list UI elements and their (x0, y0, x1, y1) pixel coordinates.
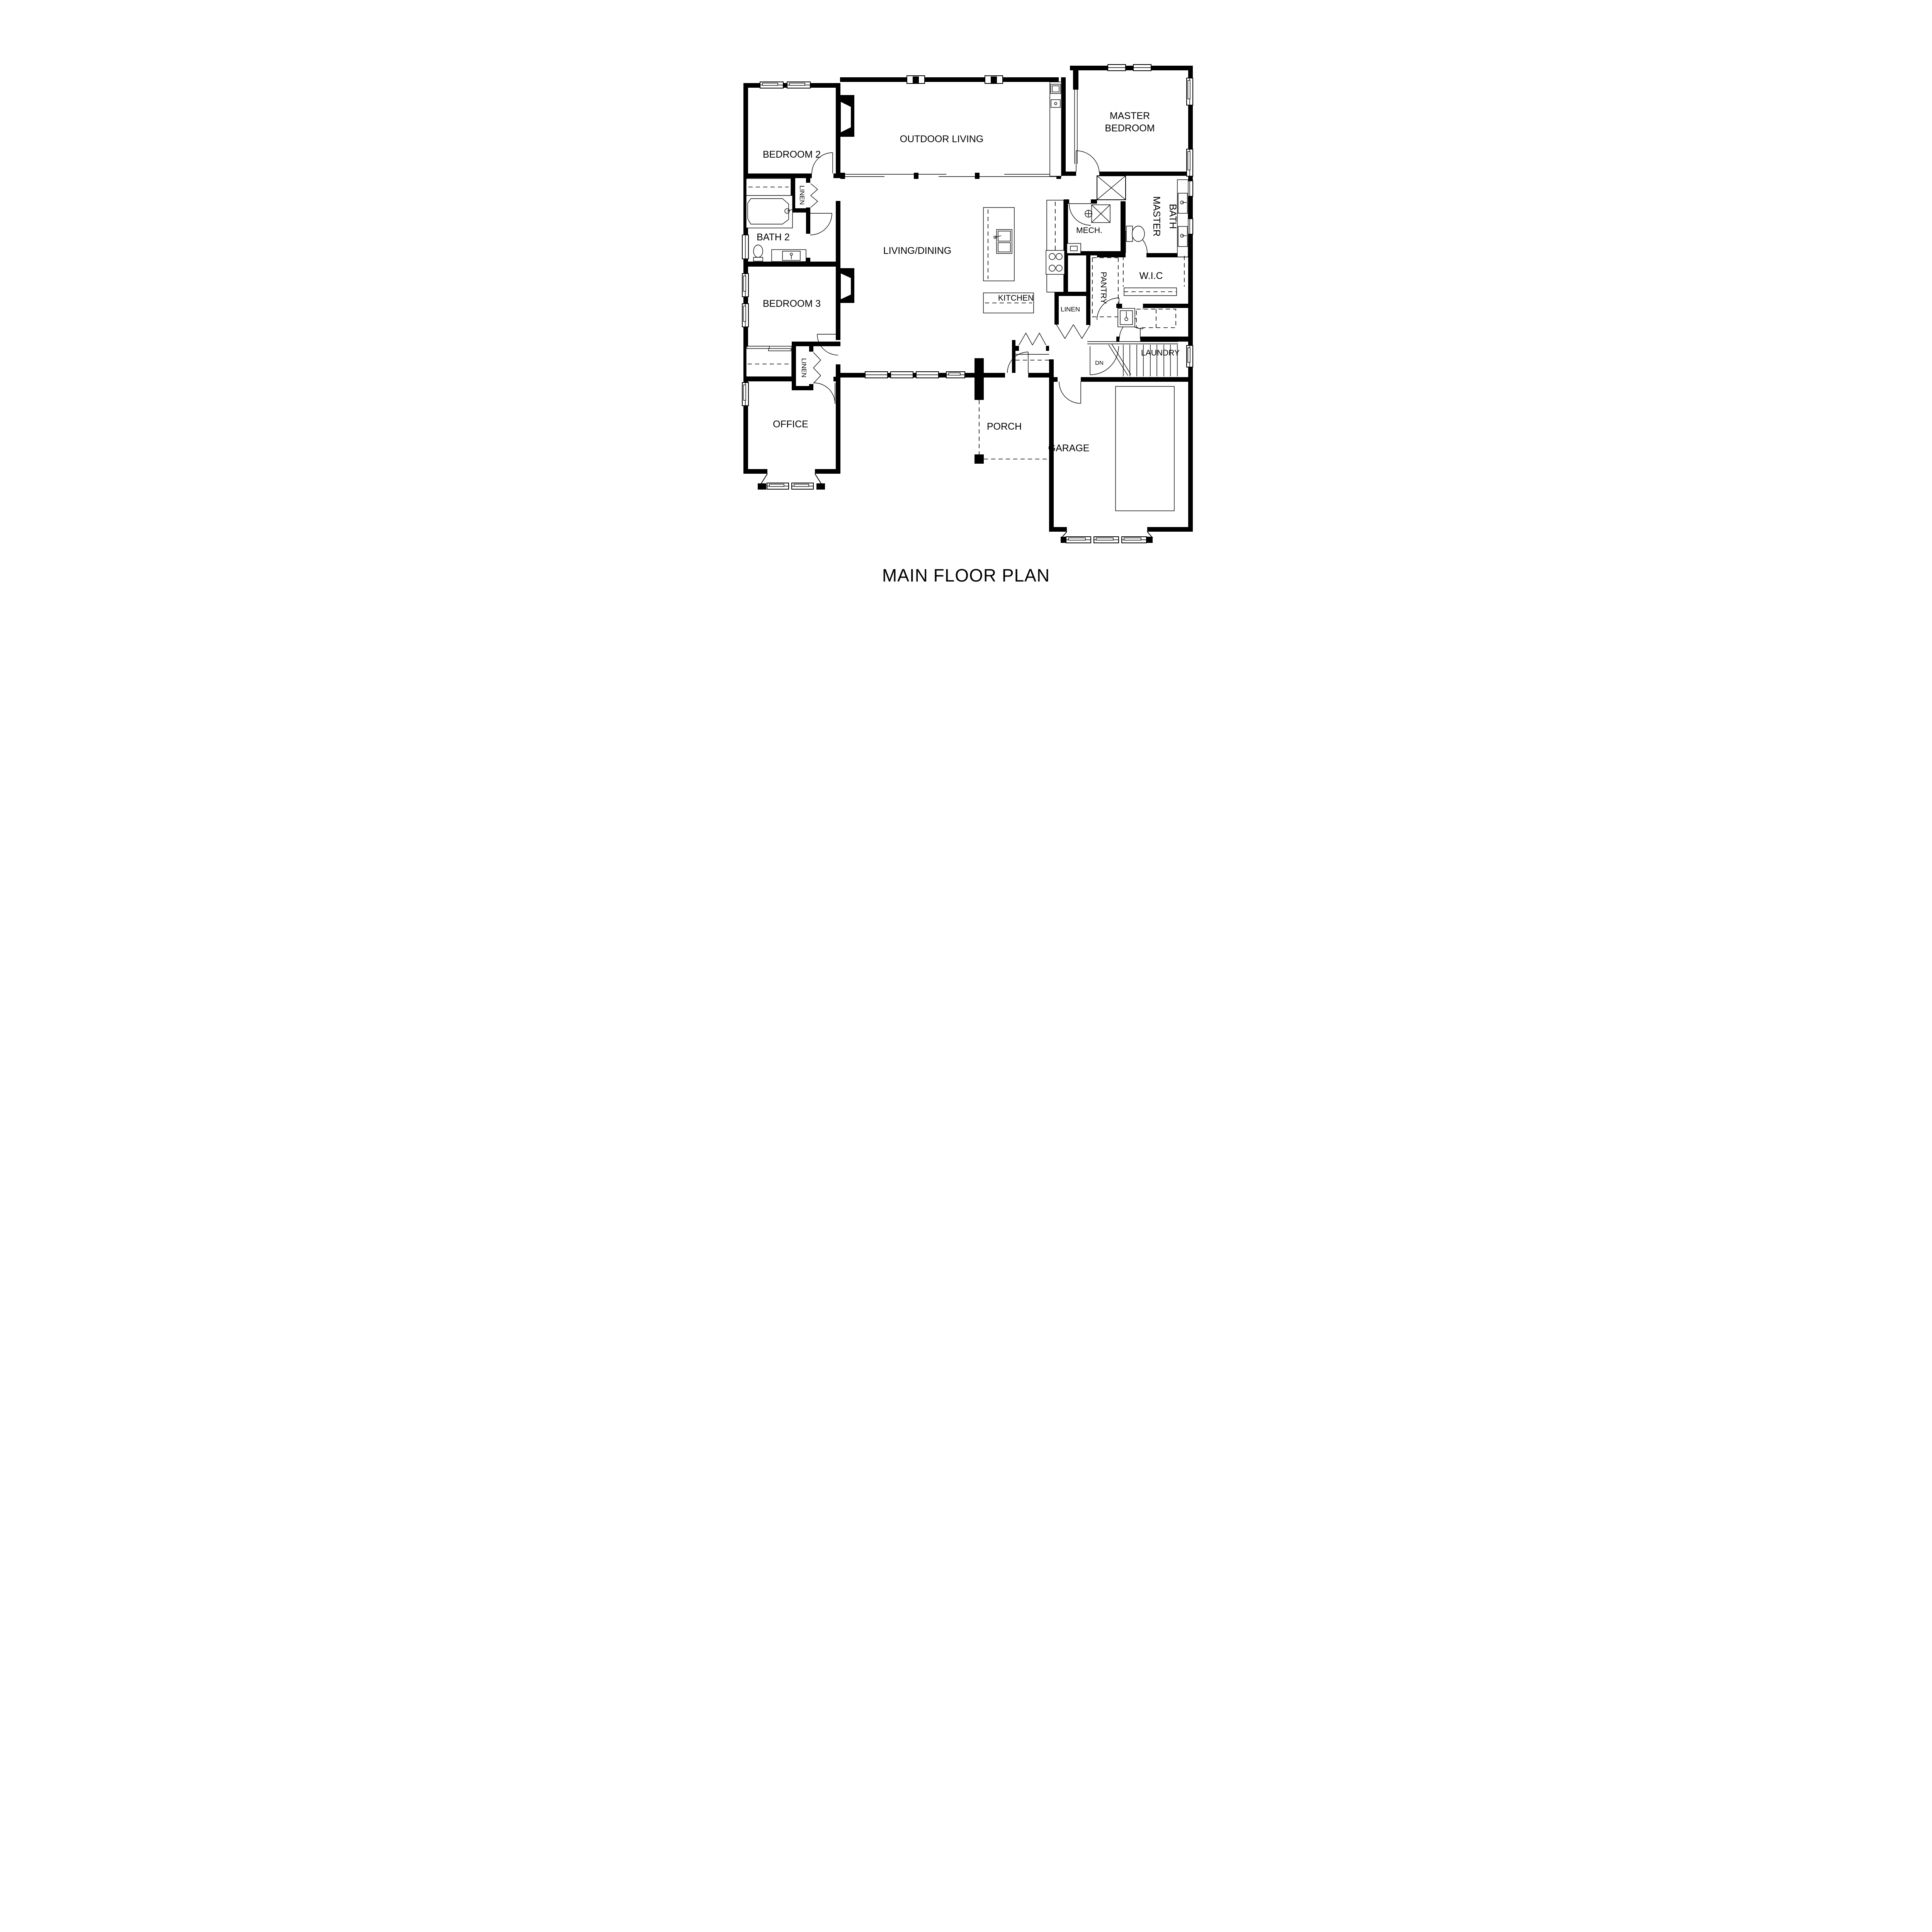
label-porch: PORCH (986, 421, 1021, 432)
outdoor-kitchen (1050, 82, 1061, 176)
window-living-front-3 (916, 372, 939, 378)
garage-pad (1116, 386, 1174, 511)
window-bedroom3-left-1 (742, 274, 748, 297)
sliding-door-outdoor-living (840, 173, 1061, 179)
door-mech (1069, 204, 1091, 225)
washer-dryer (1136, 309, 1176, 328)
window-bedroom2-1 (760, 82, 783, 88)
window-foyer-front (946, 372, 965, 378)
label-pantry: PANTRY (1099, 272, 1108, 304)
bath2-fixtures (746, 179, 806, 262)
label-wic: W.I.C (1139, 270, 1163, 281)
window-garage-bay-1 (1066, 537, 1091, 543)
bifold-linen-hall (811, 184, 818, 207)
label-office: OFFICE (773, 419, 808, 430)
laundry-sink (1118, 308, 1135, 327)
toilet-bath2 (753, 245, 763, 261)
door-garage (1059, 382, 1081, 403)
kitchen-range-counter (1046, 200, 1065, 292)
vanity-master (1177, 180, 1188, 257)
label-master-bedroom-2: BEDROOM (1105, 123, 1155, 134)
vanity-bath2 (772, 250, 806, 262)
label-outdoor-living: OUTDOOR LIVING (900, 134, 983, 145)
door-stairs (1090, 346, 1119, 375)
bifold-linen-bedroom3 (813, 352, 821, 383)
window-bath2-left (742, 235, 748, 259)
stairs (1087, 342, 1178, 376)
bathtub (746, 196, 793, 228)
label-bath2: BATH 2 (757, 232, 790, 243)
bifold-linen-kitchen (1056, 325, 1090, 338)
floor-plan-drawing: BEDROOM 2 OUTDOOR LIVING MASTER BEDROOM … (699, 0, 1233, 602)
label-laundry: LAUNDRY (1141, 349, 1180, 357)
window-bedroom3-left-2 (742, 304, 748, 327)
floor-plan-page: BEDROOM 2 OUTDOOR LIVING MASTER BEDROOM … (699, 0, 1233, 602)
plan-title: MAIN FLOOR PLAN (882, 565, 1049, 585)
window-living-front-1 (865, 372, 888, 378)
label-kitchen: KITCHEN (998, 294, 1033, 303)
fireplace-outdoor-living (836, 95, 854, 137)
window-master-top-2 (1133, 65, 1151, 71)
bifold-coat-closet (1019, 333, 1046, 345)
window-bedroom2-2 (787, 82, 810, 88)
window-master-right-1 (1187, 78, 1193, 105)
window-office-bay-1 (767, 483, 789, 489)
door-master-bedroom (1076, 151, 1099, 172)
label-garage: GARAGE (1048, 443, 1089, 454)
window-master-top-1 (1108, 65, 1126, 71)
label-bedroom3: BEDROOM 3 (762, 298, 820, 309)
bedroom3-closet (746, 346, 792, 377)
label-mech: MECH. (1076, 226, 1102, 235)
label-master-bedroom-1: MASTER (1109, 111, 1150, 121)
label-stairs-dn: DN (1095, 360, 1104, 366)
label-master-bath-1: MASTER (1151, 196, 1162, 236)
kitchen-island (983, 207, 1014, 281)
window-office-bay-2 (792, 483, 813, 489)
bedroom2-closet (746, 179, 791, 196)
label-linen-hall: LINEN (798, 185, 806, 205)
water-heater (1085, 205, 1110, 223)
window-office-left (742, 383, 748, 406)
fireplace-living (836, 268, 854, 303)
window-master-right-2 (1187, 149, 1193, 176)
furnace (1067, 243, 1081, 253)
window-garage-bay-2 (1094, 537, 1119, 543)
door-front (1007, 352, 1028, 373)
label-master-bath-2: BATH (1167, 204, 1178, 229)
window-garage-bay-3 (1122, 537, 1146, 543)
door-office (814, 383, 835, 404)
label-linen-bedroom3: LINEN (800, 358, 808, 378)
toilet-master (1126, 226, 1145, 241)
label-linen-kitchen: LINEN (1060, 306, 1080, 313)
door-bath2 (810, 213, 832, 235)
window-living-front-2 (891, 372, 913, 378)
laundry-fixtures (1118, 308, 1176, 328)
label-living-dining: LIVING/DINING (883, 245, 951, 256)
label-bedroom2: BEDROOM 2 (762, 149, 820, 160)
coat-closet (1015, 354, 1049, 360)
window-laundry-right (1187, 345, 1193, 367)
shower (1097, 176, 1126, 200)
